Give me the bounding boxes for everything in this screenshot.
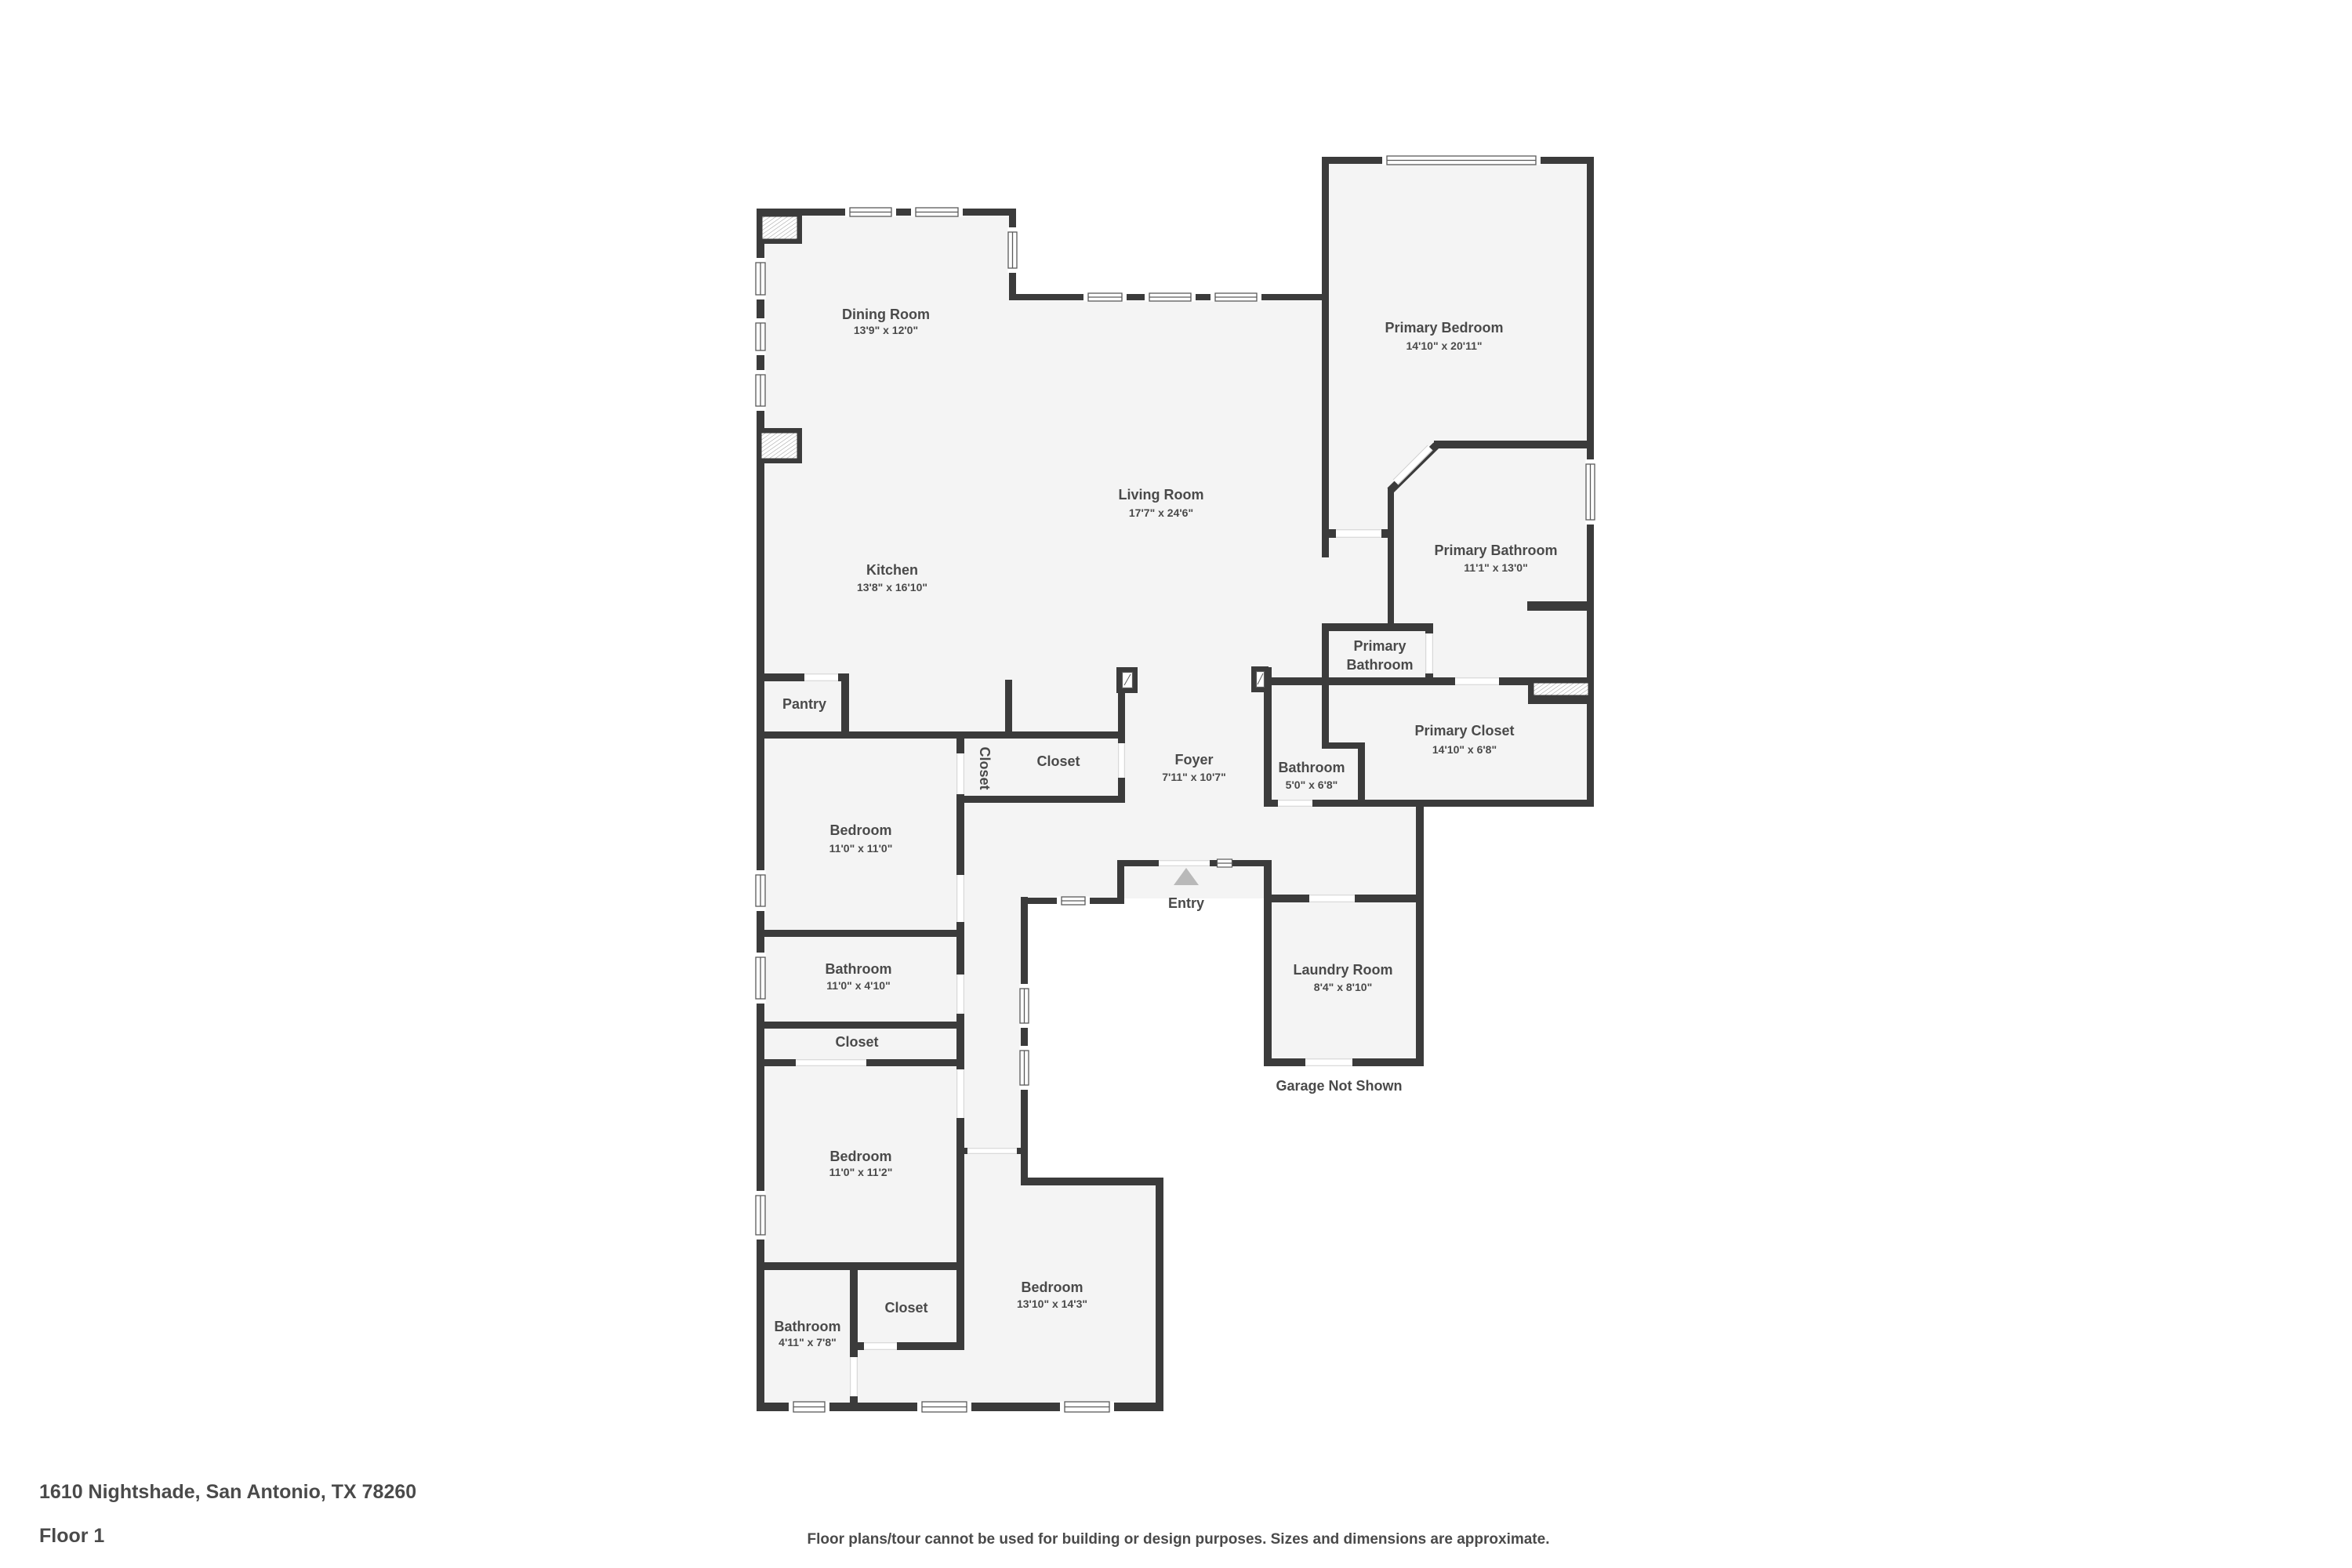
svg-text:Primary Bathroom: Primary Bathroom [1434,543,1557,558]
svg-text:14'10" x 20'11": 14'10" x 20'11" [1406,339,1482,352]
svg-text:Floor 1: Floor 1 [39,1525,104,1547]
svg-text:4'11" x 7'8": 4'11" x 7'8" [779,1336,837,1348]
svg-text:Bathroom: Bathroom [1279,760,1345,775]
svg-text:13'10" x 14'3": 13'10" x 14'3" [1017,1298,1087,1310]
svg-text:Bathroom: Bathroom [826,961,892,977]
svg-text:Garage Not Shown: Garage Not Shown [1276,1078,1402,1094]
svg-text:Laundry Room: Laundry Room [1293,962,1392,978]
svg-text:5'0" x 6'8": 5'0" x 6'8" [1286,779,1338,791]
svg-text:Bathroom: Bathroom [1347,657,1414,673]
svg-text:Living Room: Living Room [1119,487,1204,503]
svg-text:Floor plans/tour cannot be use: Floor plans/tour cannot be used for buil… [808,1531,1550,1548]
svg-text:17'7" x 24'6": 17'7" x 24'6" [1129,506,1193,519]
svg-text:11'0" x 11'2": 11'0" x 11'2" [829,1166,893,1178]
svg-text:11'0" x 11'0": 11'0" x 11'0" [829,842,893,855]
svg-text:Kitchen: Kitchen [866,562,918,578]
svg-text:Closet: Closet [835,1034,878,1050]
svg-text:Closet: Closet [1036,753,1080,769]
svg-text:Bedroom: Bedroom [1021,1279,1083,1295]
svg-text:Entry: Entry [1168,895,1204,911]
svg-text:13'9" x 12'0": 13'9" x 12'0" [854,324,918,336]
svg-text:8'4" x 8'10": 8'4" x 8'10" [1314,981,1372,993]
svg-text:13'8" x 16'10": 13'8" x 16'10" [857,581,927,593]
svg-text:11'0" x 4'10": 11'0" x 4'10" [826,979,890,992]
svg-text:7'11" x 10'7": 7'11" x 10'7" [1162,771,1225,783]
svg-text:Closet: Closet [977,746,993,789]
svg-text:Closet: Closet [884,1300,927,1316]
svg-text:1610 Nightshade, San Antonio,: 1610 Nightshade, San Antonio, TX 78260 [39,1481,416,1503]
svg-text:Primary Closet: Primary Closet [1414,723,1514,739]
svg-text:11'1" x 13'0": 11'1" x 13'0" [1464,561,1527,574]
svg-text:Pantry: Pantry [782,696,826,712]
svg-text:Dining Room: Dining Room [842,307,930,322]
svg-text:Bedroom: Bedroom [829,1149,891,1164]
svg-text:Bathroom: Bathroom [775,1319,841,1334]
svg-text:Bedroom: Bedroom [829,822,891,838]
svg-text:Primary Bedroom: Primary Bedroom [1385,320,1503,336]
svg-text:Foyer: Foyer [1174,752,1213,768]
svg-text:14'10" x 6'8": 14'10" x 6'8" [1432,743,1497,756]
svg-text:Primary: Primary [1353,638,1406,654]
